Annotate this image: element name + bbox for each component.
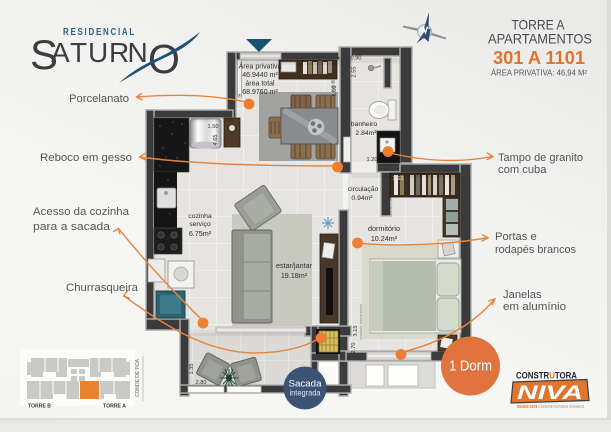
svg-text:Acesso da cozinha: Acesso da cozinha xyxy=(33,206,130,218)
svg-text:cozinha: cozinha xyxy=(188,213,212,220)
svg-text:DESDE 1973 CONCRETIZANDO SONHO: DESDE 1973 CONCRETIZANDO SONHOS xyxy=(517,404,584,409)
svg-text:1.20: 1.20 xyxy=(367,157,378,163)
svg-text:2.80: 2.80 xyxy=(196,380,207,386)
svg-text:rodapés brancos: rodapés brancos xyxy=(495,244,576,256)
svg-text:6.75m²: 6.75m² xyxy=(189,229,212,238)
svg-text:serviço: serviço xyxy=(189,221,211,228)
svg-text:4.65: 4.65 xyxy=(213,135,219,146)
svg-text:para a sacada: para a sacada xyxy=(33,221,111,233)
svg-text:T: T xyxy=(70,37,87,68)
svg-text:com cuba: com cuba xyxy=(498,164,547,176)
svg-text:R: R xyxy=(109,37,129,68)
svg-text:em alumínio: em alumínio xyxy=(503,301,566,313)
svg-text:Portas e: Portas e xyxy=(495,231,537,243)
svg-text:TORRE A: TORRE A xyxy=(103,404,126,410)
svg-text:O: O xyxy=(148,36,180,82)
svg-text:0.94m²: 0.94m² xyxy=(351,195,373,202)
svg-text:APARTAMENTOS: APARTAMENTOS xyxy=(488,31,592,47)
svg-text:46.9440 m²: 46.9440 m² xyxy=(242,72,278,79)
svg-text:Reboco em gesso: Reboco em gesso xyxy=(40,152,132,164)
svg-text:NIVA: NIVA xyxy=(517,383,583,404)
svg-text:2.84m²: 2.84m² xyxy=(355,130,377,137)
svg-text:U: U xyxy=(88,37,108,68)
svg-text:19.18m²: 19.18m² xyxy=(281,271,308,280)
svg-text:área total: área total xyxy=(245,81,275,88)
svg-text:Porcelanato: Porcelanato xyxy=(69,93,129,105)
svg-text:ÁREA PRIVATIVA: 46,94 M²: ÁREA PRIVATIVA: 46,94 M² xyxy=(491,69,587,78)
svg-text:6.00: 6.00 xyxy=(332,86,338,97)
svg-text:301 A 1101: 301 A 1101 xyxy=(493,47,585,68)
svg-text:1.63: 1.63 xyxy=(393,176,404,182)
svg-text:Tampo de granito: Tampo de granito xyxy=(498,152,583,164)
svg-text:A: A xyxy=(51,37,70,68)
svg-text:integrada: integrada xyxy=(290,389,322,398)
svg-text:1.50: 1.50 xyxy=(208,124,219,130)
svg-text:1.35: 1.35 xyxy=(189,364,195,375)
svg-text:0.90: 0.90 xyxy=(351,56,362,62)
svg-text:2.55: 2.55 xyxy=(352,67,358,78)
svg-text:1.05: 1.05 xyxy=(390,201,396,212)
svg-text:dormitório: dormitório xyxy=(368,224,400,233)
svg-text:TORRE B: TORRE B xyxy=(28,404,51,410)
svg-text:Janelas: Janelas xyxy=(503,289,542,301)
svg-text:estar/jantar: estar/jantar xyxy=(276,261,313,270)
svg-text:N: N xyxy=(128,37,148,68)
svg-text:10.24m²: 10.24m² xyxy=(371,234,398,243)
svg-text:Churrasqueira: Churrasqueira xyxy=(66,282,139,294)
svg-text:Área privativa: Área privativa xyxy=(239,62,282,71)
svg-text:CONSTRUTORA: CONSTRUTORA xyxy=(516,371,577,381)
svg-text:2.70: 2.70 xyxy=(351,343,357,354)
svg-text:Sacada: Sacada xyxy=(289,379,323,389)
svg-text:CONDE DE POA: CONDE DE POA xyxy=(135,358,141,397)
svg-text:circulação: circulação xyxy=(348,186,379,193)
svg-text:1 Dorm: 1 Dorm xyxy=(449,359,492,375)
svg-text:unidade mensurada: unidade mensurada xyxy=(358,304,363,340)
svg-text:banheiro: banheiro xyxy=(351,121,378,128)
svg-text:68.9760 m²: 68.9760 m² xyxy=(242,89,278,96)
